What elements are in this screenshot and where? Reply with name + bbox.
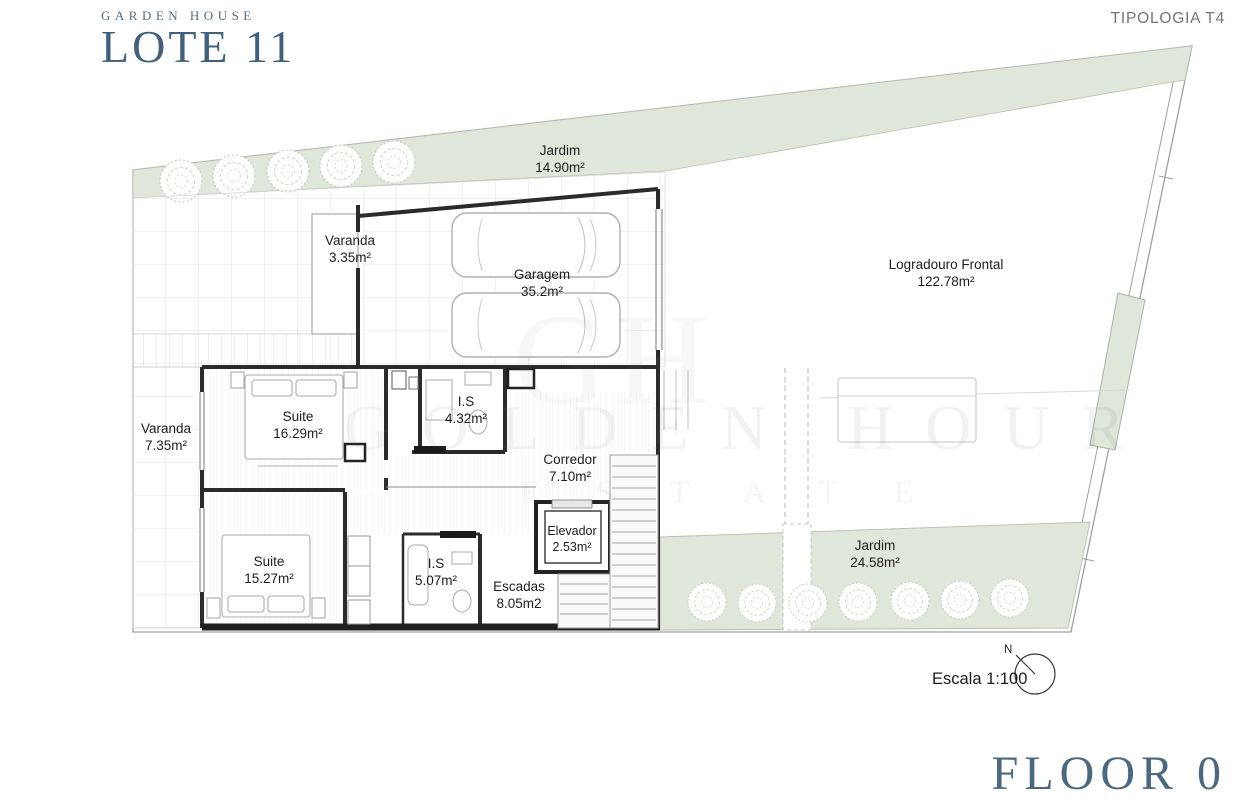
north-label: N — [1004, 644, 1012, 656]
room-label-is-2: I.S 5.07m² — [415, 555, 457, 589]
room-label-varanda-left: Varanda 7.35m² — [141, 420, 191, 454]
room-area: 8.05m2 — [493, 595, 545, 612]
room-name: Logradouro Frontal — [889, 256, 1004, 273]
room-area: 16.29m² — [273, 425, 323, 442]
room-name: Escadas — [493, 578, 545, 595]
room-name: Elevador — [547, 523, 596, 539]
room-label-escadas: Escadas 8.05m2 — [493, 578, 545, 612]
floor-plan-page: GH GOLDEN HOUR ESTATE GARDEN HOUSE LOTE … — [0, 0, 1249, 807]
brand-logo: GARDEN HOUSE LOTE 11 — [101, 8, 295, 73]
room-label-jardim-bottom: Jardim 24.58m² — [850, 537, 900, 571]
room-label-elevador: Elevador 2.53m² — [547, 523, 596, 555]
room-name: Suite — [244, 553, 294, 570]
lot-title: LOTE 11 — [101, 20, 295, 73]
floor-plan-drawing — [0, 0, 1249, 807]
room-name: Varanda — [325, 232, 375, 249]
typology-label: TIPOLOGIA T4 — [1111, 10, 1225, 28]
room-label-varanda-top: Varanda 3.35m² — [325, 232, 375, 266]
room-name: Jardim — [850, 537, 900, 554]
room-name: Garagem — [514, 266, 570, 283]
room-area: 7.10m² — [543, 468, 596, 485]
room-area: 35.2m² — [514, 283, 570, 300]
room-name: I.S — [415, 555, 457, 572]
room-name: Jardim — [535, 142, 585, 159]
room-area: 5.07m² — [415, 572, 457, 589]
room-area: 122.78m² — [889, 273, 1004, 290]
room-area: 7.35m² — [141, 437, 191, 454]
room-name: I.S — [445, 393, 487, 410]
room-area: 15.27m² — [244, 570, 294, 587]
room-area: 4.32m² — [445, 410, 487, 427]
room-label-jardim-top: Jardim 14.90m² — [535, 142, 585, 176]
room-name: Varanda — [141, 420, 191, 437]
room-label-suite-1: Suite 16.29m² — [273, 408, 323, 442]
room-label-is-1: I.S 4.32m² — [445, 393, 487, 427]
room-area: 24.58m² — [850, 554, 900, 571]
room-name: Corredor — [543, 451, 596, 468]
room-area: 3.35m² — [325, 249, 375, 266]
wardrobe — [348, 536, 370, 624]
room-label-corredor: Corredor 7.10m² — [543, 451, 596, 485]
room-name: Suite — [273, 408, 323, 425]
room-label-garagem: Garagem 35.2m² — [514, 266, 570, 300]
room-area: 14.90m² — [535, 159, 585, 176]
room-label-logradouro: Logradouro Frontal 122.78m² — [889, 256, 1004, 290]
room-area: 2.53m² — [547, 539, 596, 555]
floor-title: FLOOR 0 — [992, 746, 1227, 801]
scale-label: Escala 1:100 — [932, 670, 1027, 689]
room-label-suite-2: Suite 15.27m² — [244, 553, 294, 587]
